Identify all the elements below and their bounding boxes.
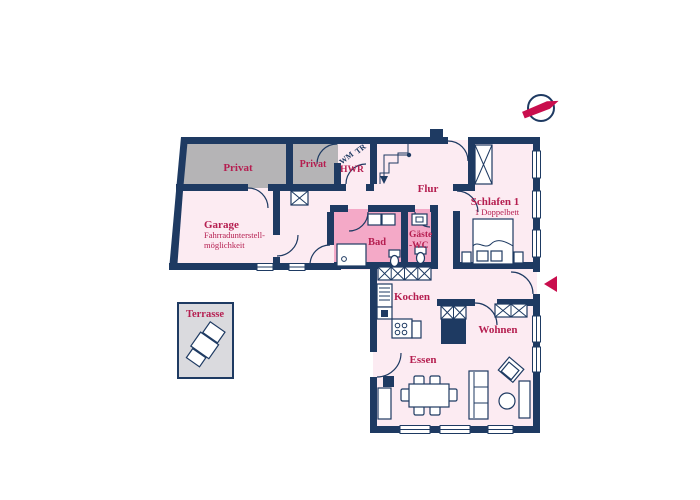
- label-hwr: HWR: [340, 165, 364, 175]
- window: [533, 191, 541, 218]
- label-privat-1: Privat: [223, 162, 253, 174]
- wall-bad-top-b: [368, 205, 415, 212]
- wall-stairs-divider: [370, 137, 377, 184]
- window: [289, 264, 305, 271]
- fridge: [377, 284, 392, 307]
- window: [533, 347, 541, 372]
- wohnen-sideboard-right: [519, 381, 530, 418]
- label-wohnen: Wohnen: [478, 324, 517, 336]
- stove: [392, 319, 412, 338]
- wall-wc-top: [430, 205, 438, 212]
- wall-privat-divider: [286, 137, 293, 191]
- wall-hwr-bottom-a: [341, 184, 346, 191]
- wall-schlafen-left-top: [468, 137, 475, 191]
- wall-vestibule-a: [273, 191, 280, 235]
- label-wc: -WC: [409, 241, 429, 251]
- kitchen-island: [441, 306, 466, 344]
- window: [440, 426, 470, 434]
- wall-chimney: [430, 129, 443, 138]
- window: [533, 316, 541, 342]
- window: [257, 264, 273, 271]
- floor-plan-page: Privat Privat WM TR HWR Flur Schlafen 1 …: [0, 0, 700, 500]
- wall-garage-bottom: [169, 263, 341, 270]
- shower: [337, 244, 366, 266]
- bad-toilet: [389, 250, 400, 267]
- label-bad: Bad: [368, 237, 386, 248]
- dining-table: [409, 384, 449, 407]
- kitchen-tall-cabinets: [378, 267, 431, 280]
- label-gaeste: Gäste: [409, 230, 432, 240]
- label-terrasse: Terrasse: [186, 309, 224, 320]
- essen-sideboard: [378, 388, 391, 419]
- wall-hwr-bottom-b: [366, 184, 374, 191]
- kitchen-counter: [412, 321, 421, 338]
- wall-lower-left-b: [370, 377, 377, 433]
- compass-north-icon: [522, 95, 560, 121]
- wall-lower-left-a: [370, 269, 377, 352]
- nightstand-left: [462, 252, 471, 263]
- label-essen: Essen: [410, 354, 437, 366]
- window: [533, 230, 541, 257]
- wohnen-sideboard-top: [495, 304, 527, 317]
- label-privat-2: Privat: [300, 159, 327, 170]
- window: [533, 151, 541, 178]
- double-bed: [473, 219, 513, 264]
- label-garage-sub1: Fahrradunterstell-: [204, 230, 265, 240]
- coffee-table: [499, 393, 515, 409]
- wall-privat1-bottom-a: [176, 184, 248, 191]
- label-garage-sub2: möglichkeit: [204, 240, 245, 250]
- label-doppelbett: 1 Doppelbett: [475, 207, 520, 217]
- floor-plan: Privat Privat WM TR HWR Flur Schlafen 1 …: [0, 0, 700, 500]
- label-kochen: Kochen: [394, 291, 430, 303]
- wardrobe: [475, 145, 492, 184]
- essen-cabinet: [383, 376, 394, 387]
- wc-sink: [412, 214, 427, 225]
- wall-hwr-divider-a: [334, 137, 341, 144]
- sofa: [469, 371, 488, 419]
- bad-sink-left: [368, 214, 381, 225]
- label-flur: Flur: [418, 183, 439, 195]
- wall-top-left: [181, 137, 448, 144]
- wall-schlafen-stub: [453, 184, 475, 191]
- wall-schlafen-left: [453, 211, 460, 269]
- shaft-box: [291, 191, 308, 205]
- wall-bad-left: [327, 212, 334, 245]
- window: [400, 426, 430, 434]
- kitchen-unit: [377, 307, 392, 319]
- wall-bad-wc-divider: [401, 212, 408, 263]
- wall-vestibule-b: [273, 257, 280, 265]
- wall-top-right: [468, 137, 540, 144]
- wall-wohnen-top-a: [437, 299, 475, 306]
- window: [488, 426, 513, 434]
- bad-sink-right: [382, 214, 395, 225]
- entrance-direction-icon: [544, 276, 557, 292]
- nightstand-right: [514, 252, 523, 263]
- wall-privat1-bottom-b: [268, 184, 341, 191]
- wall-bad-top-a: [330, 205, 348, 212]
